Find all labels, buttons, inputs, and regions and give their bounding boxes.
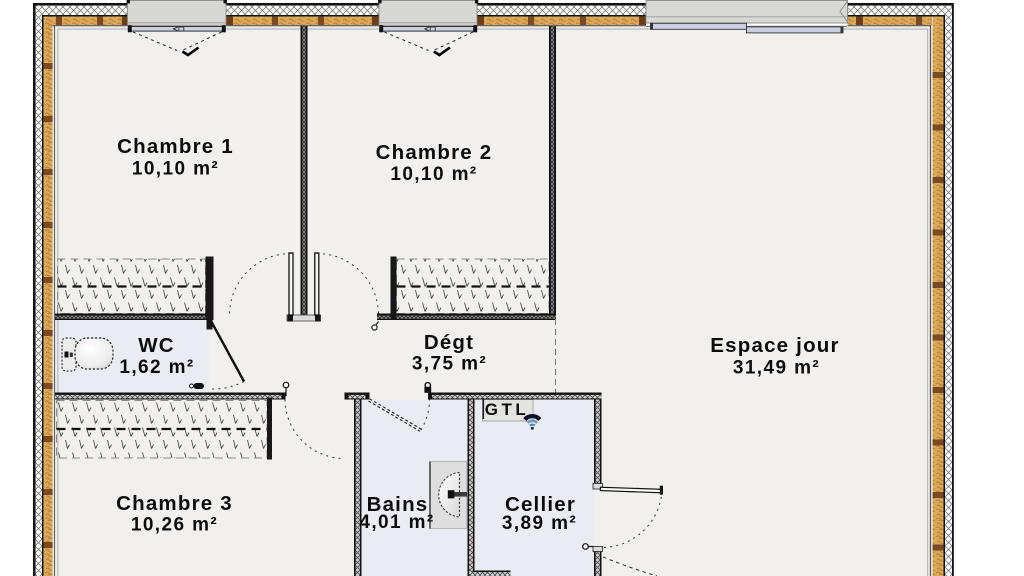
svg-text:10,10 m²: 10,10 m² xyxy=(390,164,477,185)
svg-text:3,75 m²: 3,75 m² xyxy=(412,354,487,375)
svg-text:Chambre 2: Chambre 2 xyxy=(376,141,493,164)
svg-text:GTL: GTL xyxy=(485,400,530,419)
svg-text:Dégt: Dégt xyxy=(424,331,474,354)
svg-text:31,49 m²: 31,49 m² xyxy=(733,358,820,379)
svg-text:1,62 m²: 1,62 m² xyxy=(119,357,194,378)
svg-text:4,01 m²: 4,01 m² xyxy=(359,512,434,533)
svg-text:10,10 m²: 10,10 m² xyxy=(132,159,219,180)
svg-text:Chambre 1: Chambre 1 xyxy=(117,135,234,158)
svg-text:Chambre 3: Chambre 3 xyxy=(116,492,233,515)
svg-text:10,26 m²: 10,26 m² xyxy=(131,515,218,536)
svg-text:3,89 m²: 3,89 m² xyxy=(502,513,577,534)
svg-text:WC: WC xyxy=(138,334,175,357)
svg-text:Espace jour: Espace jour xyxy=(710,334,839,357)
